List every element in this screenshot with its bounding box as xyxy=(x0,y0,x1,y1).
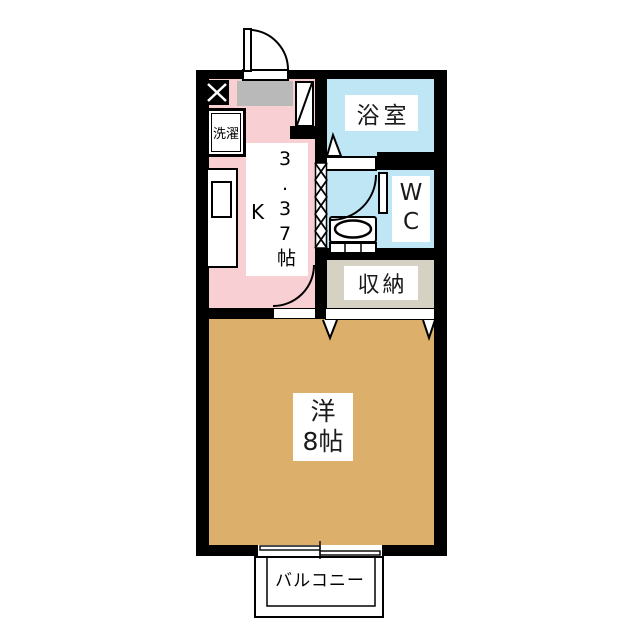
kitchen-size-label: 3.37帖 xyxy=(272,148,299,270)
western-room-size-label: 8帖 xyxy=(303,427,344,457)
shoe-stub-wall xyxy=(290,126,316,139)
entrance-door-arc xyxy=(252,30,288,70)
western-room-label-box: 洋 8帖 xyxy=(293,393,353,461)
entrance-door-leaf xyxy=(243,28,252,72)
kitchen-type-label: K xyxy=(251,200,264,224)
kitchen-sink xyxy=(211,181,232,218)
laundry-label: 洗濯 xyxy=(213,123,239,142)
wall-bath-wc xyxy=(377,152,434,170)
closet-opening xyxy=(325,308,435,320)
bathroom-door-sill xyxy=(325,156,377,171)
floor-plan: 洗濯 浴室 WC 収納 K 3.37帖 xyxy=(0,0,640,640)
sliding-window-opening xyxy=(258,545,382,556)
wc-label: WC xyxy=(398,180,424,238)
wall-kitchen-living xyxy=(209,308,273,319)
hatched-partition xyxy=(315,163,327,248)
balcony-label-box: バルコニー xyxy=(262,566,378,590)
closet-label: 収納 xyxy=(354,267,407,299)
toilet-body xyxy=(329,216,377,243)
kitchen-door-opening xyxy=(273,308,316,319)
balcony-label: バルコニー xyxy=(275,566,365,591)
kitchen-label-box: K 3.37帖 xyxy=(246,143,308,276)
toilet-tank xyxy=(329,242,377,254)
closet-label-box: 収納 xyxy=(344,266,418,300)
bathroom-label-box: 浴室 xyxy=(345,95,418,131)
washing-machine-box: 洗濯 xyxy=(206,108,246,157)
wc-door-frame xyxy=(378,172,388,214)
wall-kitchen-bath xyxy=(315,79,327,163)
western-room-name-label: 洋 xyxy=(310,397,335,427)
entrance-mat xyxy=(237,81,293,106)
wall-top xyxy=(196,70,447,79)
bathroom-label: 浴室 xyxy=(353,96,411,130)
wall-right xyxy=(434,70,447,556)
wc-label-box: WC xyxy=(392,176,430,242)
shoe-cabinet xyxy=(295,81,314,127)
ps-meter-box xyxy=(205,80,229,105)
